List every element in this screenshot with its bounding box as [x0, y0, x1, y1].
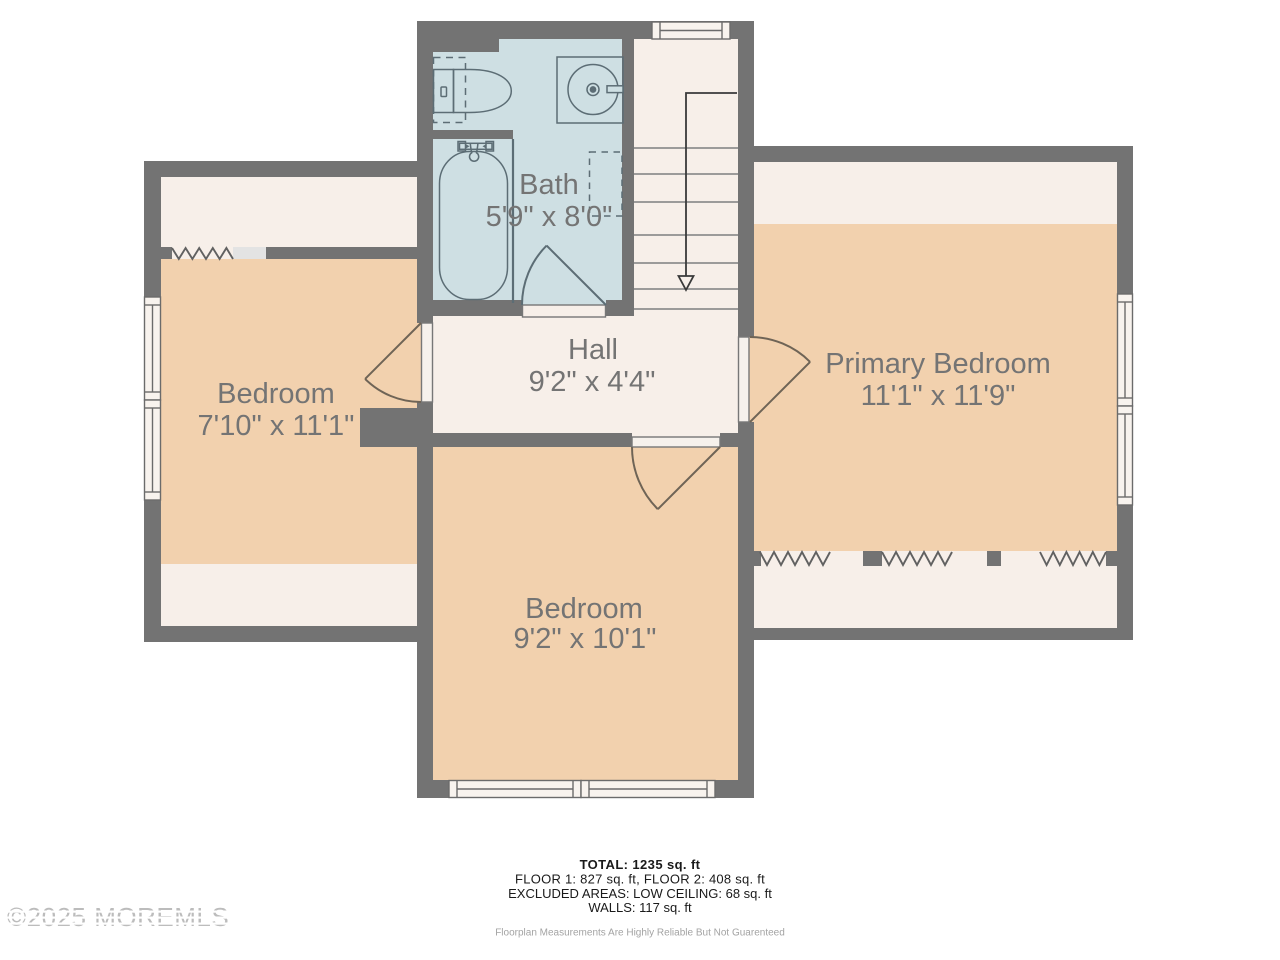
svg-text:FLOOR 1: 827 sq. ft, FLOOR 2:: FLOOR 1: 827 sq. ft, FLOOR 2: 408 sq. ft	[515, 872, 765, 887]
svg-text:9'2" x 4'4": 9'2" x 4'4"	[529, 366, 656, 398]
svg-text:5'9" x 8'0": 5'9" x 8'0"	[486, 201, 613, 233]
svg-text:Hall: Hall	[568, 334, 618, 366]
svg-text:Primary Bedroom: Primary Bedroom	[825, 348, 1051, 380]
svg-text:11'1" x 11'9": 11'1" x 11'9"	[861, 380, 1016, 412]
svg-text:Bedroom: Bedroom	[217, 378, 335, 410]
svg-text:9'2" x 10'1": 9'2" x 10'1"	[514, 623, 657, 655]
svg-text:7'10" x 11'1": 7'10" x 11'1"	[198, 410, 355, 442]
svg-text:Bath: Bath	[519, 169, 579, 201]
svg-text:Floorplan Measurements Are Hig: Floorplan Measurements Are Highly Reliab…	[495, 928, 785, 939]
svg-text:WALLS: 117 sq. ft: WALLS: 117 sq. ft	[588, 900, 692, 915]
svg-text:EXCLUDED AREAS: LOW CEILING: 6: EXCLUDED AREAS: LOW CEILING: 68 sq. ft	[508, 886, 772, 901]
svg-text:TOTAL: 1235 sq. ft: TOTAL: 1235 sq. ft	[580, 857, 701, 872]
svg-text:Bedroom: Bedroom	[525, 593, 643, 625]
